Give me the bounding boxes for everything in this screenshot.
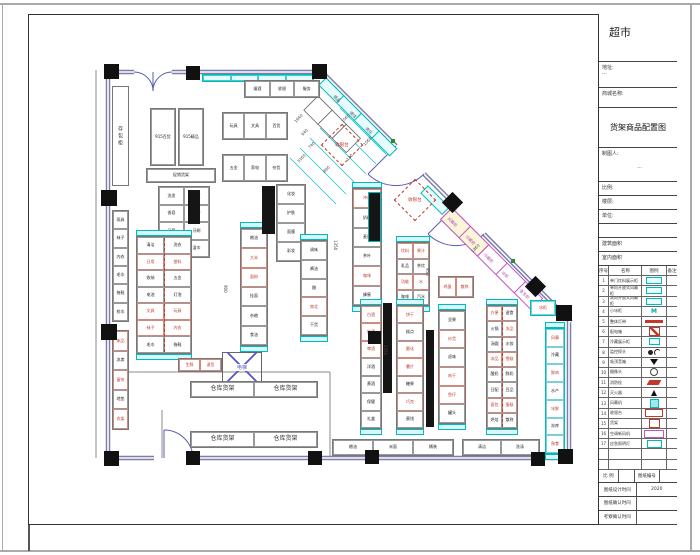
- footer-row: 图纸设计时间2020: [599, 483, 677, 497]
- legend-cell: 吸顶音箱: [609, 358, 642, 367]
- info-row: 室内面积: [599, 252, 677, 266]
- legend-cell: [667, 388, 677, 397]
- info-rows: 比例:楼层:单位:建筑面积室内面积: [599, 182, 677, 266]
- legend-row: 10摄像头: [599, 368, 677, 378]
- legend-cell: [667, 398, 677, 407]
- legend-cell: [667, 327, 677, 336]
- legend-cell: 3: [599, 297, 609, 306]
- diagonal-wall-shelf-2: [421, 186, 449, 214]
- legend-cell: [642, 409, 667, 418]
- legend-cell: 单门饮料展示柜: [609, 276, 642, 285]
- blacktri-symbol: [651, 390, 657, 396]
- legend-cell: [667, 368, 677, 377]
- footer-cell: 图纸确认时间: [599, 497, 637, 510]
- legend-cell: [642, 388, 667, 397]
- redpara-symbol: [647, 380, 662, 385]
- legend-cell: 双向开放式风幕柜: [609, 297, 642, 306]
- legend-row: 7冷藏展示柜: [599, 337, 677, 347]
- ring-symbol: [650, 368, 658, 376]
- legend-cell: [667, 317, 677, 326]
- legend-cell: 消防栓: [609, 378, 642, 387]
- legend-cell: 13: [599, 398, 609, 407]
- legend-cell: 配电箱: [609, 327, 642, 336]
- legend-row: 17应急照明灯: [599, 439, 677, 449]
- legend-cell: [642, 348, 667, 357]
- legend-cell: 2: [599, 286, 609, 295]
- legend-cell: [667, 337, 677, 346]
- legend-cell: [642, 460, 667, 469]
- legend-cell: 收银台: [609, 409, 642, 418]
- legend-header: 序号名称图例备注: [599, 266, 677, 276]
- legend-cell: 监控探头: [609, 348, 642, 357]
- legend-cell: [667, 460, 677, 469]
- footer-row: 比 例图纸编号: [599, 470, 677, 484]
- legend-cell: [667, 419, 677, 428]
- legend-cell: [642, 439, 667, 448]
- magenta-symbol: [644, 430, 664, 438]
- legend-cell: [642, 276, 667, 285]
- address-value: ···: [602, 71, 607, 77]
- legend-cell: [667, 439, 677, 448]
- legend-cell: [667, 449, 677, 458]
- footer-cell: [637, 511, 677, 524]
- cyansmall-symbol: [649, 338, 660, 345]
- legend-cell: [642, 337, 667, 346]
- mall-label: 商城名称:: [602, 91, 624, 97]
- cyanbox-symbol: [646, 298, 662, 305]
- drafter-label: 制图人:: [602, 151, 619, 157]
- legend-cell: 摄像头: [609, 368, 642, 377]
- legend-table: 序号名称图例备注1单门饮料展示柜2单向开放式风幕柜3双向开放式风幕柜4小冰柜M5…: [599, 266, 677, 470]
- cyanoutline-symbol: [647, 440, 662, 448]
- legend-row: 4小冰柜M: [599, 307, 677, 317]
- drawing-sheet: 存包柜 电梯 收银台 收银台 烟酒收银服务915百货915精品促销货架玩具文具百…: [0, 0, 700, 555]
- cyanbox-symbol: [646, 277, 662, 284]
- address-row: 地址: ···: [599, 62, 677, 88]
- legend-row: 1单门饮料展示柜: [599, 276, 677, 286]
- legend-cell: 8: [599, 348, 609, 357]
- legend-cell: [642, 317, 667, 326]
- legend-cell: [642, 429, 667, 438]
- legend-cell: [642, 419, 667, 428]
- legend-cell: M: [642, 307, 667, 316]
- legend-cell: 5: [599, 317, 609, 326]
- legend-cell: [642, 327, 667, 336]
- footer-cell: 考察确认时间: [599, 511, 637, 524]
- legend-cell: [642, 398, 667, 407]
- legend-row: 9吸顶音箱: [599, 358, 677, 368]
- legend-row: 11消防栓: [599, 378, 677, 388]
- footer-row: 考察确认时间: [599, 511, 677, 525]
- dotarc-symbol: [648, 349, 661, 356]
- drafter-row: 制图人: ···: [599, 148, 677, 182]
- legend-cell: 小冰柜: [609, 307, 642, 316]
- floor-plan-walls: [0, 0, 700, 555]
- cyanfill-symbol: [650, 399, 659, 408]
- legend-cell: [642, 368, 667, 377]
- legend-cell: 17: [599, 439, 609, 448]
- footer-rows: 比 例图纸编号图纸设计时间2020图纸确认时间考察确认时间: [599, 470, 677, 525]
- legend-cell: 12: [599, 388, 609, 397]
- footer-cell: 比 例: [599, 470, 619, 483]
- legend-cell: [667, 307, 677, 316]
- legend-cell: 灭火器: [609, 388, 642, 397]
- drawing-title: 货架商品配置图: [599, 108, 677, 148]
- redbox-symbol: [649, 419, 660, 428]
- info-row: 比例:: [599, 182, 677, 196]
- legend-cell: 应急照明灯: [609, 439, 642, 448]
- cyanbox-symbol: [646, 287, 662, 294]
- legend-cell: [667, 276, 677, 285]
- footer-cell: 图纸编号: [635, 470, 661, 483]
- title-block: 超市 地址: ··· 商城名称: 货架商品配置图 制图人: ··· 比例:楼层:…: [598, 14, 677, 525]
- legend-row: [599, 460, 677, 470]
- mall-name-row: 商城名称:: [599, 88, 677, 108]
- legend-cell: [599, 449, 609, 458]
- legend-cell: 单向开放式风幕柜: [609, 286, 642, 295]
- legend-row: [599, 449, 677, 459]
- legend-row: 14收银台: [599, 409, 677, 419]
- legend-cell: 11: [599, 378, 609, 387]
- legend-row: 15货架: [599, 419, 677, 429]
- partition-walls: [96, 70, 330, 458]
- legend-cell: [667, 358, 677, 367]
- legend-cell: [667, 429, 677, 438]
- legend-cell: 货架: [609, 419, 642, 428]
- m-symbol: M: [651, 308, 657, 315]
- footer-cell: [637, 497, 677, 510]
- legend-cell: 序号: [599, 266, 609, 275]
- speaker-symbol: [650, 359, 658, 365]
- legend-cell: [609, 460, 642, 469]
- info-row: 楼层:: [599, 196, 677, 210]
- footer-cell: 2020: [637, 483, 677, 496]
- legend-cell: 1: [599, 276, 609, 285]
- legend-row: 6配电箱: [599, 327, 677, 337]
- fridge-run: [441, 208, 543, 310]
- info-row: 单位:: [599, 210, 677, 224]
- legend-cell: 4: [599, 307, 609, 316]
- info-row: [599, 224, 677, 238]
- legend-cell: 6: [599, 327, 609, 336]
- legend-row: 13风幕机: [599, 398, 677, 408]
- legend-cell: [642, 297, 667, 306]
- footer-cell: [619, 470, 635, 483]
- legend-cell: 10: [599, 368, 609, 377]
- legend-cell: [642, 286, 667, 295]
- legend-cell: [642, 358, 667, 367]
- legend-cell: [642, 378, 667, 387]
- footer-row: 图纸确认时间: [599, 497, 677, 511]
- door-arcs: [134, 72, 484, 459]
- legend-row: 3双向开放式风幕柜: [599, 297, 677, 307]
- redoutline-symbol: [645, 409, 663, 417]
- redhatch-symbol: [649, 327, 660, 336]
- info-row: 建筑面积: [599, 238, 677, 252]
- legend-cell: 名称: [609, 266, 642, 275]
- drafter-value: ···: [602, 165, 677, 171]
- legend-cell: [609, 449, 642, 458]
- legend-cell: [667, 378, 677, 387]
- legend-row: 12灭火器: [599, 388, 677, 398]
- store-title: 超市: [599, 14, 677, 62]
- legend-cell: [599, 460, 609, 469]
- legend-cell: 空调新风机: [609, 429, 642, 438]
- legend-cell: [667, 348, 677, 357]
- legend-cell: [667, 297, 677, 306]
- legend-cell: 16: [599, 429, 609, 438]
- redline-symbol: [645, 320, 663, 323]
- legend-cell: 整体灯带: [609, 317, 642, 326]
- footer-cell: 图纸设计时间: [599, 483, 637, 496]
- legend-cell: 风幕机: [609, 398, 642, 407]
- legend-row: 8监控探头: [599, 348, 677, 358]
- legend-cell: [667, 286, 677, 295]
- legend-cell: 7: [599, 337, 609, 346]
- legend-row: 16空调新风机: [599, 429, 677, 439]
- legend-cell: [642, 449, 667, 458]
- legend-cell: 15: [599, 419, 609, 428]
- legend-cell: 图例: [642, 266, 667, 275]
- legend-cell: 冷藏展示柜: [609, 337, 642, 346]
- legend-cell: 9: [599, 358, 609, 367]
- legend-cell: 备注: [667, 266, 677, 275]
- footer-cell: [660, 470, 677, 483]
- legend-row: 2单向开放式风幕柜: [599, 286, 677, 296]
- legend-row: 5整体灯带: [599, 317, 677, 327]
- legend-cell: [667, 409, 677, 418]
- legend-cell: 14: [599, 409, 609, 418]
